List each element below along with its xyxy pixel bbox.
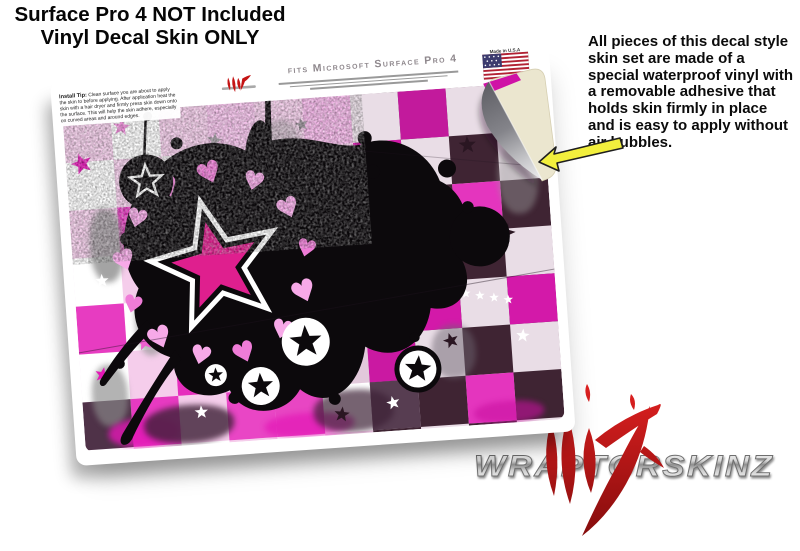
product-image: Surface Pro 4 NOT Included Vinyl Decal S… bbox=[0, 0, 800, 551]
string-line bbox=[142, 117, 149, 155]
wraptorskinz-mini-logo-icon bbox=[220, 74, 257, 96]
decal-skin-card: Install Tip: Clean surface you are about… bbox=[50, 47, 576, 466]
disclaimer-heading: Surface Pro 4 NOT Included Vinyl Decal S… bbox=[0, 4, 300, 50]
disclaimer-line-2: Vinyl Decal Skin ONLY bbox=[0, 27, 300, 50]
black-star-circle bbox=[117, 153, 175, 211]
disclaimer-line-1: Surface Pro 4 NOT Included bbox=[0, 4, 300, 27]
pointer-arrow-icon bbox=[533, 126, 628, 178]
